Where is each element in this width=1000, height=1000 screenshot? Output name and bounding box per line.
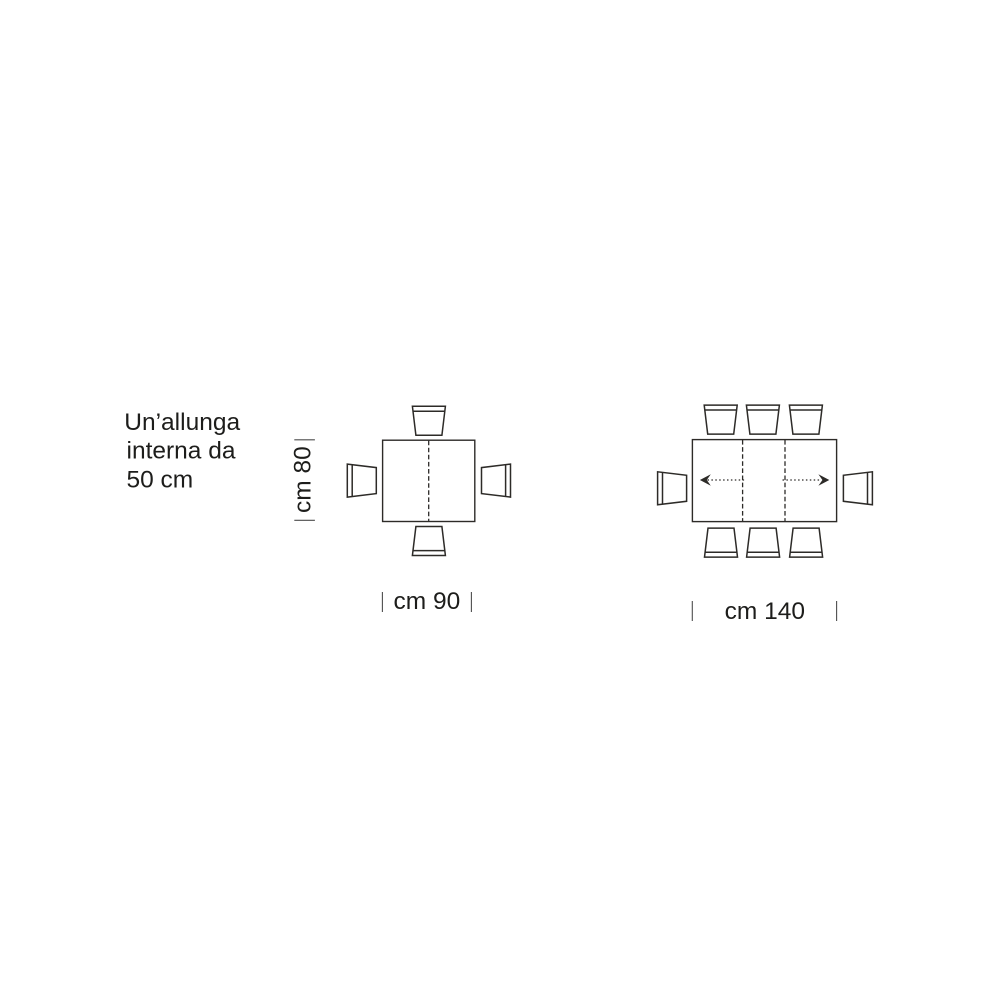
svg-text:cm 90: cm 90 — [394, 588, 461, 615]
svg-text:cm 80: cm 80 — [290, 446, 317, 513]
svg-text:cm 140: cm 140 — [725, 598, 805, 625]
